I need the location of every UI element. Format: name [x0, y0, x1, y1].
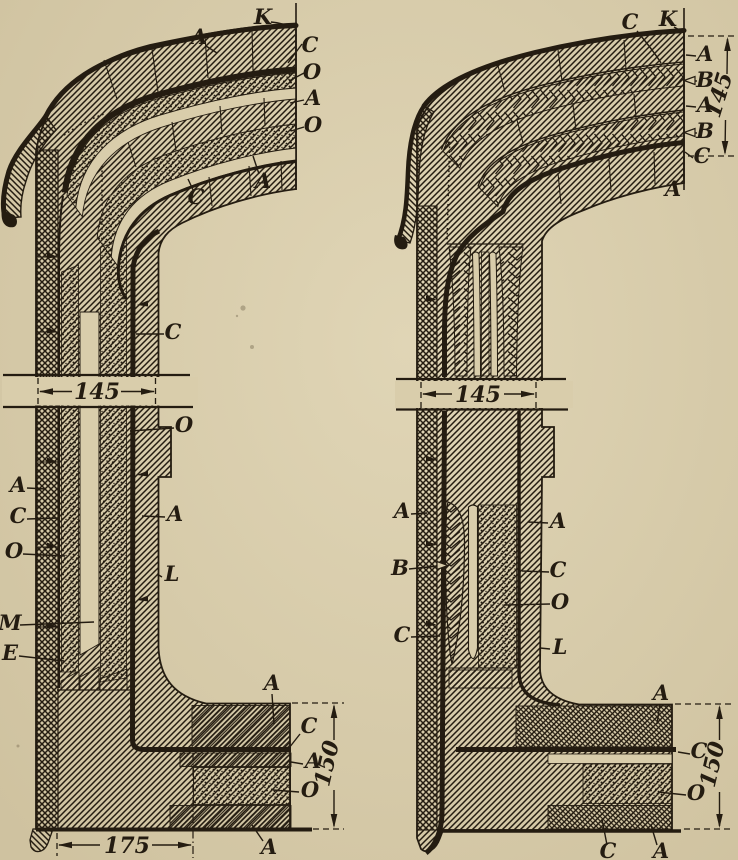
label-left-l-face: L	[164, 561, 180, 586]
dim-left-wall: 145	[74, 379, 120, 405]
dim-left-width: 175	[104, 833, 150, 859]
left-floor-fill	[194, 768, 291, 805]
right-floor-course-top	[516, 706, 672, 747]
label-right-o-fill: O	[551, 589, 570, 614]
label-left-o-floor: O	[301, 777, 320, 802]
left-casing-foot	[30, 829, 53, 852]
label-left-a-floor: A	[262, 670, 280, 695]
label-right-b-leaf: B	[390, 555, 409, 580]
left-air-gap-column	[80, 312, 99, 655]
label-right-c-shell: C	[394, 622, 411, 647]
label-right-a-outer: A	[392, 498, 410, 523]
label-left-c-under: C	[188, 184, 205, 209]
label-left-a-inner: A	[165, 501, 183, 526]
right-floor-course-bottom	[548, 806, 672, 830]
label-left-e-col: E	[1, 640, 19, 665]
label-right-a-under: A	[663, 176, 681, 201]
label-left-a-floor3: A	[259, 834, 277, 859]
right-fill-column	[479, 505, 517, 668]
label-left-o-cut2: O	[304, 112, 323, 137]
label-left-o-cut1: O	[303, 59, 322, 84]
label-right-a2: A	[695, 92, 713, 117]
left-fill-column-2	[101, 240, 127, 682]
label-right-c-floor: C	[691, 738, 708, 763]
label-left-o-fill: O	[5, 538, 24, 563]
label-right-a1: A	[695, 41, 713, 66]
label-left-c-wall: C	[165, 319, 182, 344]
label-right-b2: B	[695, 118, 714, 143]
left-view: 145 175 150 K A C O A	[0, 3, 345, 859]
right-floor-gap	[548, 754, 672, 764]
label-left-a-top: A	[189, 24, 207, 49]
label-left-a-cut: A	[303, 85, 321, 110]
label-right-k: K	[658, 6, 678, 31]
right-floor-fill	[583, 764, 672, 804]
label-left-a-floor2: A	[303, 748, 321, 773]
left-fill-column-1	[62, 265, 79, 672]
label-left-a-outer: A	[8, 472, 26, 497]
dim-right-wall: 145	[455, 382, 501, 408]
left-floor-course-top	[192, 706, 290, 748]
label-right-c-cut: C	[694, 143, 711, 168]
label-right-o-floor: O	[687, 780, 706, 805]
label-left-c-cut: C	[302, 32, 319, 57]
left-outer-course	[37, 150, 58, 829]
label-right-a-inner: A	[548, 508, 566, 533]
right-column-cap	[449, 670, 512, 688]
label-left-k: K	[253, 4, 273, 29]
right-funnel-mid	[482, 252, 490, 376]
left-floor-course-bottom	[170, 806, 291, 829]
figure-canvas: 145 175 150 K A C O A	[0, 0, 738, 860]
label-right-b1: B	[695, 67, 714, 92]
right-view: 145 145 150 C K A B A B	[390, 6, 738, 860]
right-funnel-slot-2	[490, 252, 498, 376]
right-dim-height: 150	[675, 704, 733, 829]
label-right-a-floor: A	[651, 680, 669, 705]
label-left-m-col: M	[0, 610, 22, 635]
book-page: 145 175 150 K A C O A	[0, 0, 738, 860]
label-left-c-floor: C	[301, 713, 318, 738]
label-right-l-face: L	[552, 634, 568, 659]
label-left-a-under: A	[253, 168, 271, 193]
label-right-a-floor2: A	[651, 838, 669, 860]
right-air-slot	[469, 505, 478, 659]
label-left-c-shell: C	[10, 503, 27, 528]
left-floor-course-mid	[180, 753, 291, 767]
label-right-c-floor2: C	[600, 838, 617, 860]
label-right-c-top: C	[622, 9, 639, 34]
label-right-c-col: C	[550, 557, 567, 582]
label-left-o-ledge: O	[175, 412, 194, 437]
right-funnel-slot-1	[473, 252, 481, 376]
